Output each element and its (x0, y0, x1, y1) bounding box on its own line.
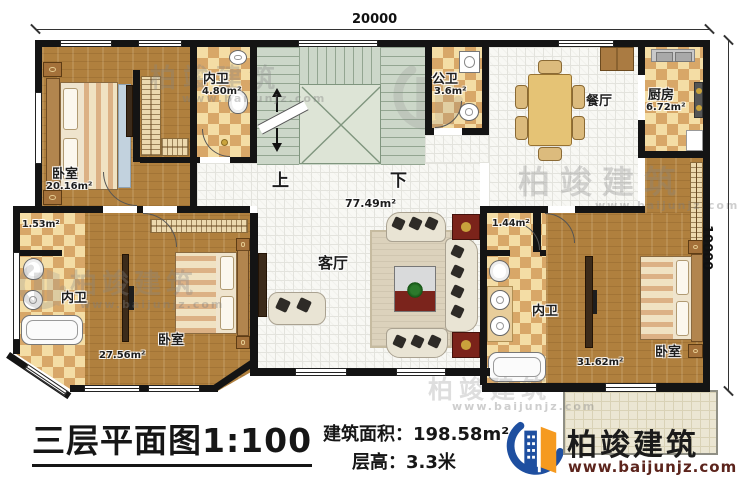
label-living-area: 77.49m² (345, 197, 396, 210)
bed-pillow (220, 256, 234, 290)
wall (482, 383, 710, 392)
corridor-floor (197, 163, 257, 206)
wall (575, 206, 645, 213)
sink-basin (656, 52, 673, 62)
wall (425, 47, 432, 135)
sink-basin (675, 52, 692, 62)
dimension-top-value: 20000 (352, 12, 397, 27)
plant (406, 281, 424, 299)
stair-arrow-line-up (276, 96, 278, 112)
window (60, 40, 112, 47)
window (138, 40, 182, 47)
window (148, 385, 200, 392)
dining-chair (515, 85, 528, 109)
wall (250, 47, 257, 163)
plan-title: 三层平面图1:100 (32, 414, 312, 462)
label-stairs-down: 下 (390, 166, 407, 191)
nightstand (43, 190, 62, 205)
wall (638, 47, 645, 75)
wall (425, 128, 434, 135)
label-public-bath: 公卫 (432, 68, 458, 87)
hall-below-public-bath (425, 135, 489, 163)
wall (140, 157, 200, 163)
wall (177, 206, 250, 213)
floor-plan-canvas: 卧室 20.16m² 内卫 4.80m² 公卫 3.6m² 餐厅 厨房 6.72… (0, 0, 750, 486)
label-bedroom-tl-area: 20.16m² (46, 181, 92, 192)
company-url: www.baijunjz.com (568, 458, 737, 476)
watermark-logo-icon (18, 256, 66, 318)
stair-arrow-down (272, 143, 282, 152)
tv (593, 290, 597, 314)
wardrobe-hangers (161, 138, 189, 156)
dining-chair (572, 116, 585, 140)
stove (694, 82, 703, 118)
side-table (452, 214, 480, 240)
wall (638, 151, 710, 158)
window (396, 368, 446, 376)
toilet (489, 260, 510, 282)
dining-table (528, 74, 572, 146)
label-bedroom-bl-area: 27.56m² (99, 350, 145, 361)
label-public-bath-area: 3.6m² (434, 86, 467, 97)
building-area-label: 建筑面积： (323, 424, 413, 445)
label-kitchen: 厨房 (648, 84, 674, 103)
company-logo-icon (505, 417, 563, 481)
sink (229, 50, 247, 65)
nightstand (236, 336, 250, 349)
bed-pillow (220, 296, 234, 330)
label-bath-left: 内卫 (61, 287, 87, 306)
floor-height-label: 层高： (352, 452, 406, 473)
label-closet-left-area: 1.53m² (22, 219, 60, 230)
label-bedroom-tl: 卧室 (52, 163, 78, 182)
stair-void-x (300, 85, 382, 165)
bed-blanket (176, 253, 216, 333)
label-bedroom-br-area: 31.62m² (577, 357, 623, 368)
tv (129, 286, 134, 310)
label-bath-tl-area: 4.80m² (202, 86, 241, 97)
label-bath-right-area: 1.44m² (492, 218, 530, 229)
wall (13, 206, 42, 213)
sink (490, 316, 510, 336)
label-bedroom-bl: 卧室 (158, 329, 184, 348)
burner (696, 88, 702, 94)
wall (190, 157, 197, 206)
dimension-line-right (728, 40, 729, 392)
bed-pillow (676, 301, 689, 336)
label-bath-tl: 内卫 (203, 68, 229, 87)
label-bath-right: 内卫 (532, 300, 558, 319)
sink (490, 290, 510, 310)
building-area-line: 建筑面积：198.58m² (323, 420, 509, 446)
window (13, 252, 20, 340)
wall (540, 250, 546, 256)
label-dining: 餐厅 (586, 90, 612, 109)
window (558, 40, 614, 47)
wall (190, 47, 197, 163)
wall (482, 47, 489, 135)
stair-void (299, 84, 381, 164)
label-living: 客厅 (318, 252, 348, 273)
floor-height-value: 3.3米 (406, 452, 456, 473)
bathtub (21, 315, 83, 345)
title-underline (32, 464, 312, 467)
bed-pillow (676, 260, 689, 295)
bed-headboard (237, 250, 249, 336)
window (298, 40, 378, 47)
bathtub (488, 352, 546, 382)
window (605, 383, 657, 392)
stair-flight-top (299, 47, 382, 84)
wall (42, 206, 103, 213)
tv-wall (122, 254, 129, 342)
wall (250, 368, 490, 376)
label-kitchen-area: 6.72m² (646, 102, 685, 113)
dining-chair (538, 60, 562, 74)
wall (703, 40, 710, 392)
dresser (126, 85, 133, 137)
stair-arrow-up (272, 88, 282, 97)
building-area-value: 198.58m² (413, 424, 509, 445)
bed-pillow (63, 88, 78, 130)
label-bedroom-br: 卧室 (655, 341, 681, 360)
dining-chair (515, 116, 528, 140)
stair-arrow-line-down (276, 128, 278, 144)
wall (250, 213, 258, 368)
wardrobe-hangers (141, 76, 161, 156)
wall (20, 250, 62, 256)
watermark-text: 柏竣建筑 (518, 157, 686, 203)
label-stairs-up: 上 (272, 166, 289, 191)
wall (482, 206, 548, 213)
wall (487, 250, 510, 256)
tv-cabinet (258, 253, 267, 317)
nightstand (688, 344, 703, 358)
floor-height-line: 层高：3.3米 (352, 448, 456, 474)
kitchen-counter (686, 130, 703, 151)
sideboard-cabinet (600, 47, 634, 71)
nightstand (43, 62, 62, 77)
dining-chair (572, 85, 585, 109)
wall (230, 157, 250, 163)
wall (462, 128, 489, 135)
side-table (452, 332, 480, 358)
wall (480, 206, 487, 385)
window (35, 92, 42, 164)
burner (696, 105, 702, 111)
wall (137, 206, 143, 213)
kitchen-sink (651, 49, 695, 62)
dimension-line-top (35, 29, 710, 30)
tv-wall (585, 256, 593, 348)
window (295, 368, 347, 376)
bed-blanket (641, 257, 673, 339)
wall (133, 70, 140, 162)
dimension-right-value: 10000 (699, 225, 714, 270)
window (84, 385, 140, 392)
